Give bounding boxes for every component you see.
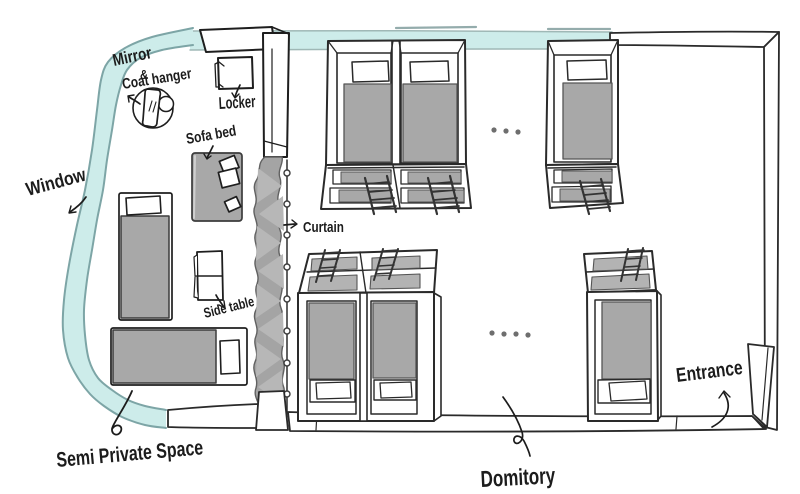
svg-text:Domitory: Domitory (480, 464, 556, 493)
svg-text:Locker: Locker (218, 93, 256, 114)
svg-text:Sofa bed: Sofa bed (185, 122, 238, 147)
svg-text:Semi Private Space: Semi Private Space (55, 435, 204, 471)
svg-text:Entrance: Entrance (675, 356, 744, 386)
svg-text:Curtain: Curtain (303, 219, 344, 236)
svg-text:Window: Window (24, 163, 89, 200)
